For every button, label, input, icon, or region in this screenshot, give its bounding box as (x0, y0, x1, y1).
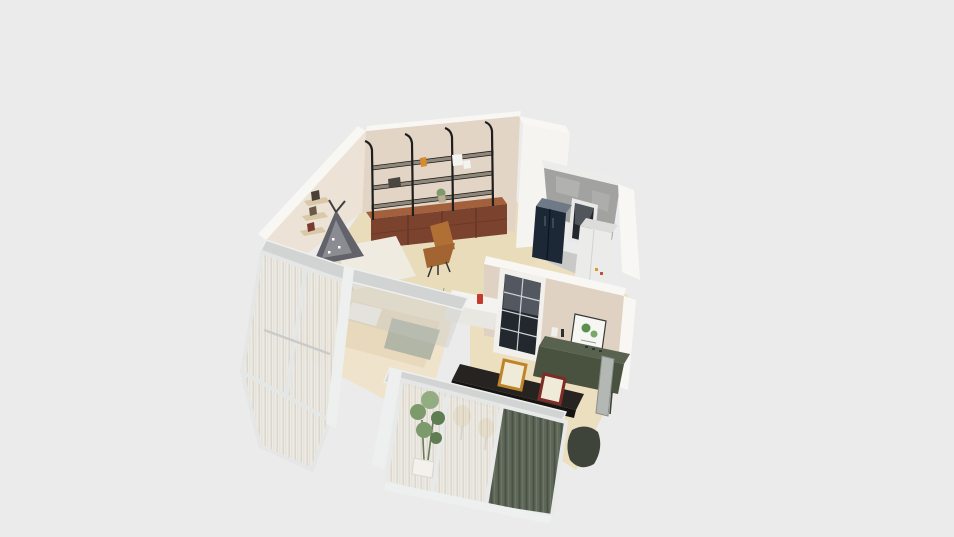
plant-pot (412, 458, 434, 478)
plant-foliage (430, 432, 442, 444)
glass-panel-door (493, 268, 546, 362)
picture-frame-red (539, 374, 565, 404)
plant-foliage (421, 391, 439, 409)
desk-bottle (561, 329, 564, 337)
desk-knickknack (592, 348, 595, 350)
decor-white-vase (463, 160, 471, 169)
poster-art (582, 324, 591, 333)
floorplan-viewport[interactable] (0, 0, 954, 537)
desk-knickknack (585, 346, 588, 348)
decor-white-bag (452, 154, 463, 166)
decor-orange-book (420, 157, 427, 167)
dark-armchair (567, 426, 600, 467)
plant-foliage (410, 404, 426, 420)
teepee-dot (332, 238, 335, 241)
desk-knickknack (599, 350, 602, 352)
plant-foliage (431, 411, 445, 425)
green-drape-pane (486, 406, 566, 516)
cabinet-accent-dot (600, 272, 603, 275)
teepee-dot (338, 246, 341, 249)
cabinet-accent-dot (595, 268, 598, 271)
desk-vase (551, 327, 558, 337)
plant-foliage (416, 422, 432, 438)
picture-frame-amber (499, 360, 526, 390)
decor-plant-pot (438, 195, 446, 203)
teepee-dot (328, 251, 331, 254)
red-kettle (477, 294, 483, 304)
render-canvas (0, 0, 954, 537)
poster-art (591, 331, 598, 338)
